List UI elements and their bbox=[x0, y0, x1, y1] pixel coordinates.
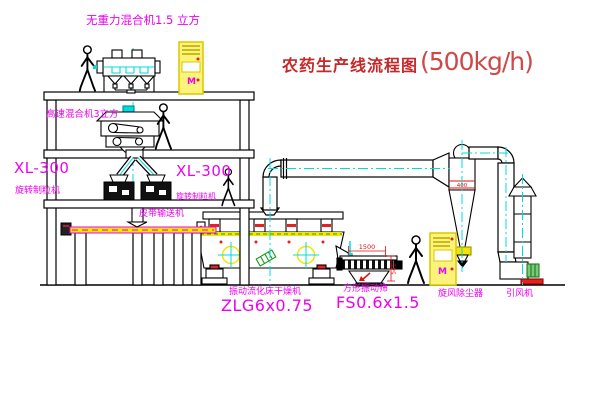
floor-slab-mid bbox=[44, 150, 254, 158]
cabinet-motor-symbol: M bbox=[187, 77, 196, 87]
label-belt-conveyor: 皮带输送机 bbox=[139, 210, 184, 219]
fluid-bed-dryer bbox=[197, 212, 352, 284]
gravity-free-mixer bbox=[93, 50, 160, 93]
label-granulator-model-right: XL-300 bbox=[176, 164, 231, 179]
exhaust-duct bbox=[261, 153, 449, 215]
support-leg bbox=[154, 233, 163, 285]
person-figure bbox=[408, 236, 424, 283]
support-leg bbox=[174, 233, 183, 285]
dim-screen-height: 541 bbox=[391, 263, 398, 275]
label-granulator-model-left: XL-300 bbox=[14, 161, 69, 176]
label-fan: 引风机 bbox=[506, 290, 533, 299]
floor-slab-top bbox=[44, 92, 254, 100]
vibrating-screen: 1500 541 bbox=[337, 241, 402, 286]
screen-body bbox=[343, 260, 394, 269]
title-capacity: (500kg/h) bbox=[420, 47, 533, 76]
label-gravity-free-mixer: 无重力混合机1.5 立方 bbox=[86, 15, 200, 27]
fan-base bbox=[521, 279, 543, 284]
support-leg bbox=[75, 233, 86, 285]
dim-screen-width: 1500 bbox=[359, 243, 376, 251]
rotary-granulator bbox=[141, 175, 171, 200]
label-high-speed-mixer: 高速混合机3立方 bbox=[46, 110, 119, 120]
column-right bbox=[240, 100, 249, 285]
cyclone-inlet-transition bbox=[433, 153, 449, 187]
cad-flow-diagram: 1500 541 400 bbox=[0, 0, 600, 403]
support-leg bbox=[192, 233, 201, 285]
label-granulator-name-right: 旋转制粒机 bbox=[176, 193, 216, 201]
fan-duct bbox=[469, 147, 516, 262]
diagram-title: 农药生产线流程图 (500kg/h) bbox=[282, 47, 533, 76]
control-cabinet: M bbox=[430, 233, 456, 285]
title-chinese: 农药生产线流程图 bbox=[282, 52, 418, 76]
label-granulator-name-left: 旋转制粒机 bbox=[15, 187, 60, 196]
induced-draft-fan bbox=[500, 262, 543, 284]
rotary-granulator bbox=[104, 175, 134, 200]
support-leg bbox=[133, 233, 142, 285]
label-dryer-model: ZLG6x0.75 bbox=[221, 298, 313, 314]
fan-motor bbox=[527, 264, 539, 277]
label-screen-model: FS0.6x1.5 bbox=[336, 295, 420, 311]
person-figure bbox=[80, 46, 95, 91]
control-cabinet: M bbox=[179, 42, 203, 94]
cabinet-motor-symbol: M bbox=[438, 267, 447, 277]
label-cyclone: 旋风除尘器 bbox=[438, 290, 483, 299]
